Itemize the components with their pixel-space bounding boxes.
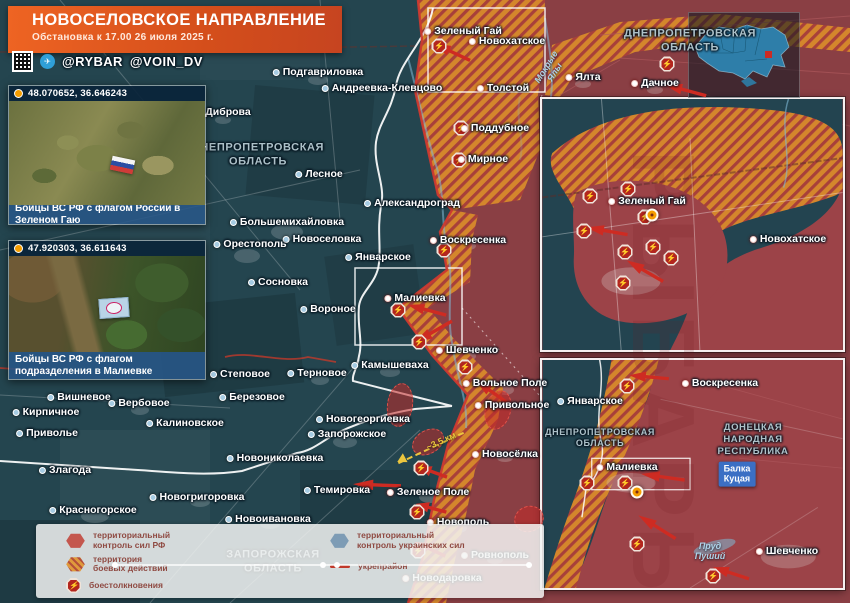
photo-coords-bar: 48.070652, 36.646243 <box>9 86 205 101</box>
photo-coords-bar: 47.920303, 36.611643 <box>9 241 205 256</box>
inset-zelenyi-gai-graphics <box>542 99 843 350</box>
location-pin-icon <box>14 89 23 98</box>
inset-malievka <box>540 358 845 590</box>
ua-control-swatch-icon <box>330 533 349 548</box>
handle-voin-dv: @VOIN_DV <box>130 54 203 69</box>
social-handles: ✈ @RYBAR @VOIN_DV <box>12 49 203 73</box>
inset-malievka-graphics <box>542 360 843 588</box>
legend-item-clashes: боестолкновения <box>66 578 316 593</box>
combat-zone-swatch-icon <box>66 557 85 572</box>
photo-image <box>9 256 205 352</box>
map-title: НОВОСЕЛОВСКОЕ НАПРАВЛЕНИЕ <box>32 11 332 30</box>
scale-line <box>112 564 532 566</box>
clashes-swatch-icon <box>66 578 81 593</box>
photo-coordinates: 47.920303, 36.611643 <box>28 243 127 254</box>
map-subtitle: Обстановка к 17.00 26 июля 2025 г. <box>32 32 332 43</box>
rf-control-swatch-icon <box>66 533 85 548</box>
photo-caption: Бойцы ВС РФ с флагом подразделения в Мал… <box>9 352 205 379</box>
photo-coordinates: 48.070652, 36.646243 <box>28 88 127 99</box>
ukraine-minimap-graphics <box>689 13 799 97</box>
legend-item-rf-control: территориальный контроль сил РФ <box>66 531 316 551</box>
title-banner: НОВОСЕЛОВСКОЕ НАПРАВЛЕНИЕ Обстановка к 1… <box>8 6 342 53</box>
photo-caption: Бойцы ВС РФ с флагом России в Зеленом Га… <box>9 205 205 224</box>
photo-panel-zelenyi-gai: 48.070652, 36.646243 Бойцы ВС РФ с флаго… <box>8 85 206 225</box>
qr-code-icon <box>12 51 33 72</box>
handle-rybar: @RYBAR <box>62 54 123 69</box>
scale-dot-icon <box>334 562 340 568</box>
rybar-war-map: РЫБАРЬ <box>0 0 850 603</box>
telegram-icon: ✈ <box>40 54 55 69</box>
inset-zelenyi-gai <box>540 97 845 352</box>
legend-item-ua-control: территориальный контроль украинских сил <box>330 531 534 551</box>
map-legend: территориальный контроль сил РФ территор… <box>36 524 544 598</box>
photo-image <box>9 101 205 205</box>
legend-column-left: территориальный контроль сил РФ территор… <box>66 531 316 593</box>
scale-dot-icon <box>320 562 326 568</box>
photo-panel-malievka: 47.920303, 36.611643 Бойцы ВС РФ с флаго… <box>8 240 206 380</box>
location-pin-icon <box>14 244 23 253</box>
ukraine-minimap <box>688 12 800 98</box>
balka-kutsaya-label: Балка Куцая <box>719 462 756 487</box>
scale-dot-icon <box>112 562 118 568</box>
unit-flag-icon <box>98 297 129 319</box>
scale-dot-icon <box>526 562 532 568</box>
area-of-interest-marker <box>765 51 772 58</box>
russian-flag-icon <box>110 156 135 174</box>
legend-column-right: территориальный контроль украинских сил … <box>330 531 534 593</box>
